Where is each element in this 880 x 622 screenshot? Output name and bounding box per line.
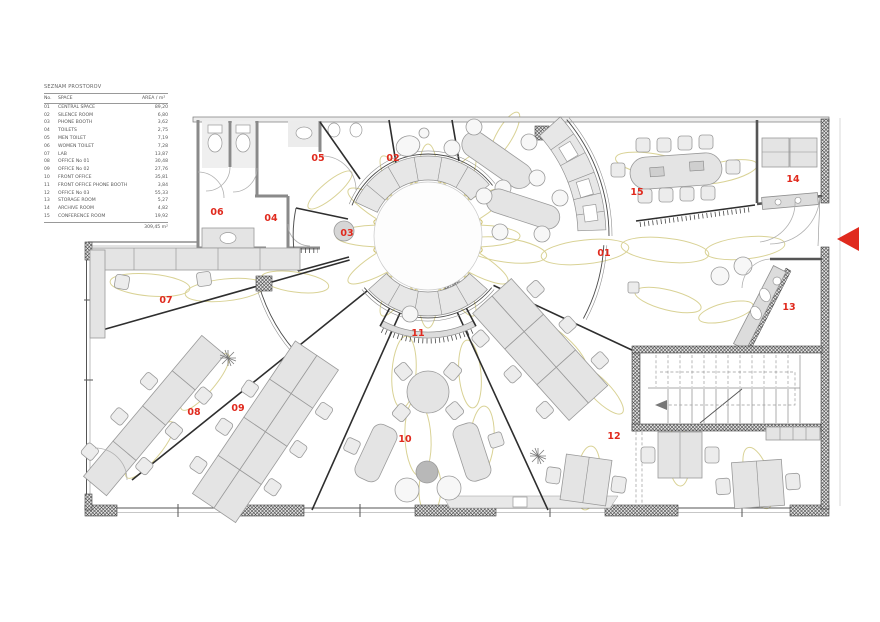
- room-label-03: 03: [340, 228, 353, 239]
- central-hub: [349, 151, 495, 321]
- chair: [545, 467, 561, 485]
- chair: [214, 417, 233, 436]
- chair: [529, 170, 545, 186]
- door-arc: [322, 156, 356, 190]
- hatched-wall: [605, 505, 678, 516]
- chair: [139, 371, 159, 391]
- urinal-icon: [350, 123, 362, 137]
- door-arc: [233, 168, 257, 192]
- chair: [343, 437, 362, 456]
- chair: [552, 190, 568, 206]
- chair: [628, 282, 639, 293]
- chair: [314, 401, 333, 420]
- chair: [611, 476, 627, 494]
- chair: [705, 447, 719, 463]
- chair: [558, 315, 578, 335]
- chair: [636, 138, 650, 152]
- door-arc: [288, 224, 310, 246]
- lab-bench: [92, 248, 300, 270]
- sink-icon: [220, 233, 236, 244]
- hatched-wall: [85, 494, 92, 510]
- chair: [289, 439, 308, 458]
- chair: [726, 160, 740, 174]
- room-label-01: 01: [597, 248, 610, 259]
- room-label-10: 10: [398, 434, 412, 445]
- chair: [503, 364, 523, 384]
- door-arc: [198, 172, 224, 198]
- room-label-04: 04: [264, 213, 278, 224]
- wc-bowl-icon: [236, 134, 250, 152]
- room-label-02: 02: [386, 153, 399, 164]
- side-table: [419, 128, 429, 138]
- chair: [521, 134, 537, 150]
- armchair: [437, 476, 461, 500]
- upper-flight-risers: [656, 355, 788, 387]
- chair: [678, 136, 692, 150]
- room-label-13: 13: [782, 302, 795, 313]
- hatched-wall: [632, 353, 640, 431]
- reception-desk: [451, 420, 494, 483]
- pouf: [711, 267, 729, 285]
- archive-counter: [762, 193, 819, 210]
- counter-item: [773, 277, 781, 285]
- desk-cluster: [714, 458, 801, 510]
- chair: [444, 400, 464, 420]
- wall-ticks: [640, 210, 751, 225]
- shelf: [790, 138, 817, 167]
- chair: [263, 478, 282, 497]
- armchair: [395, 478, 419, 502]
- stool: [402, 306, 418, 322]
- chair: [476, 188, 492, 204]
- chair: [110, 407, 130, 427]
- wall-03-lower: [298, 257, 349, 271]
- chair: [391, 402, 411, 422]
- conference-room: [611, 120, 757, 225]
- chair: [492, 224, 508, 240]
- floor-plan-drawing: 01 02 03 04 05 06 07 08 09 10 11 12 13 1…: [0, 0, 880, 622]
- column: [256, 276, 272, 291]
- table-console: [689, 161, 704, 171]
- chair: [80, 442, 100, 462]
- chair: [680, 187, 694, 201]
- walk-line-arrow-icon: [655, 400, 667, 410]
- room-label-14: 14: [786, 174, 800, 185]
- chair: [641, 447, 655, 463]
- room-label-12: 12: [607, 431, 620, 442]
- plant-icon: [220, 350, 236, 366]
- chair: [393, 361, 413, 381]
- hatched-wall-right-upper: [821, 119, 829, 203]
- chair: [590, 351, 610, 371]
- archive-room: [757, 138, 822, 242]
- chair: [487, 431, 505, 449]
- chair: [196, 271, 212, 287]
- chair: [699, 135, 713, 149]
- chair: [526, 279, 546, 299]
- wall-07-08: [95, 260, 350, 332]
- page: { "colors": { "accent_red": "#e02a1e", "…: [0, 0, 880, 622]
- hatched-wall-right-lower: [821, 247, 829, 509]
- room-label-08: 08: [187, 407, 201, 418]
- chair: [785, 473, 800, 490]
- chair: [114, 274, 130, 290]
- storage-room: [734, 259, 823, 353]
- room-label-07: 07: [159, 295, 172, 306]
- chair: [657, 138, 671, 152]
- wall-03-upper: [296, 208, 348, 219]
- wc-tank: [208, 125, 222, 133]
- room-label-09: 09: [231, 403, 244, 414]
- lower-flight-risers: [668, 389, 788, 423]
- room-label-06: 06: [210, 207, 224, 218]
- chair: [535, 400, 555, 420]
- chair: [659, 188, 673, 202]
- chair: [466, 119, 482, 135]
- wc-bowl-icon: [208, 134, 222, 152]
- counter-item: [795, 197, 802, 204]
- wall-15-central: [636, 205, 755, 221]
- lab-shelf: [90, 250, 105, 338]
- chair: [701, 186, 715, 200]
- shelf: [762, 138, 789, 167]
- door-arc: [206, 167, 230, 191]
- desk-cluster: [641, 432, 719, 478]
- conference-table: [629, 152, 723, 190]
- hub-inner-circle: [374, 182, 482, 290]
- counter-item: [775, 199, 782, 206]
- chair: [534, 226, 550, 242]
- room-label-15: 15: [630, 187, 643, 198]
- porch-door: [513, 497, 527, 507]
- room-label-11: 11: [411, 328, 424, 339]
- wc-tank: [236, 125, 250, 133]
- chair: [444, 140, 460, 156]
- round-table: [407, 371, 449, 413]
- table-console: [650, 167, 665, 177]
- stair-break-line: [700, 389, 742, 423]
- chair: [716, 478, 731, 495]
- room-label-05: 05: [311, 153, 324, 164]
- sink-icon: [583, 204, 598, 222]
- kitchen-counter: [540, 117, 640, 293]
- pouf: [734, 257, 752, 275]
- coffee-table: [416, 461, 438, 483]
- chair: [240, 379, 259, 398]
- hatched-wall: [632, 346, 822, 353]
- sink-icon: [296, 127, 312, 139]
- chair: [189, 455, 208, 474]
- plant-icon: [530, 448, 546, 464]
- chair: [611, 163, 625, 177]
- reception-desk: [352, 421, 400, 485]
